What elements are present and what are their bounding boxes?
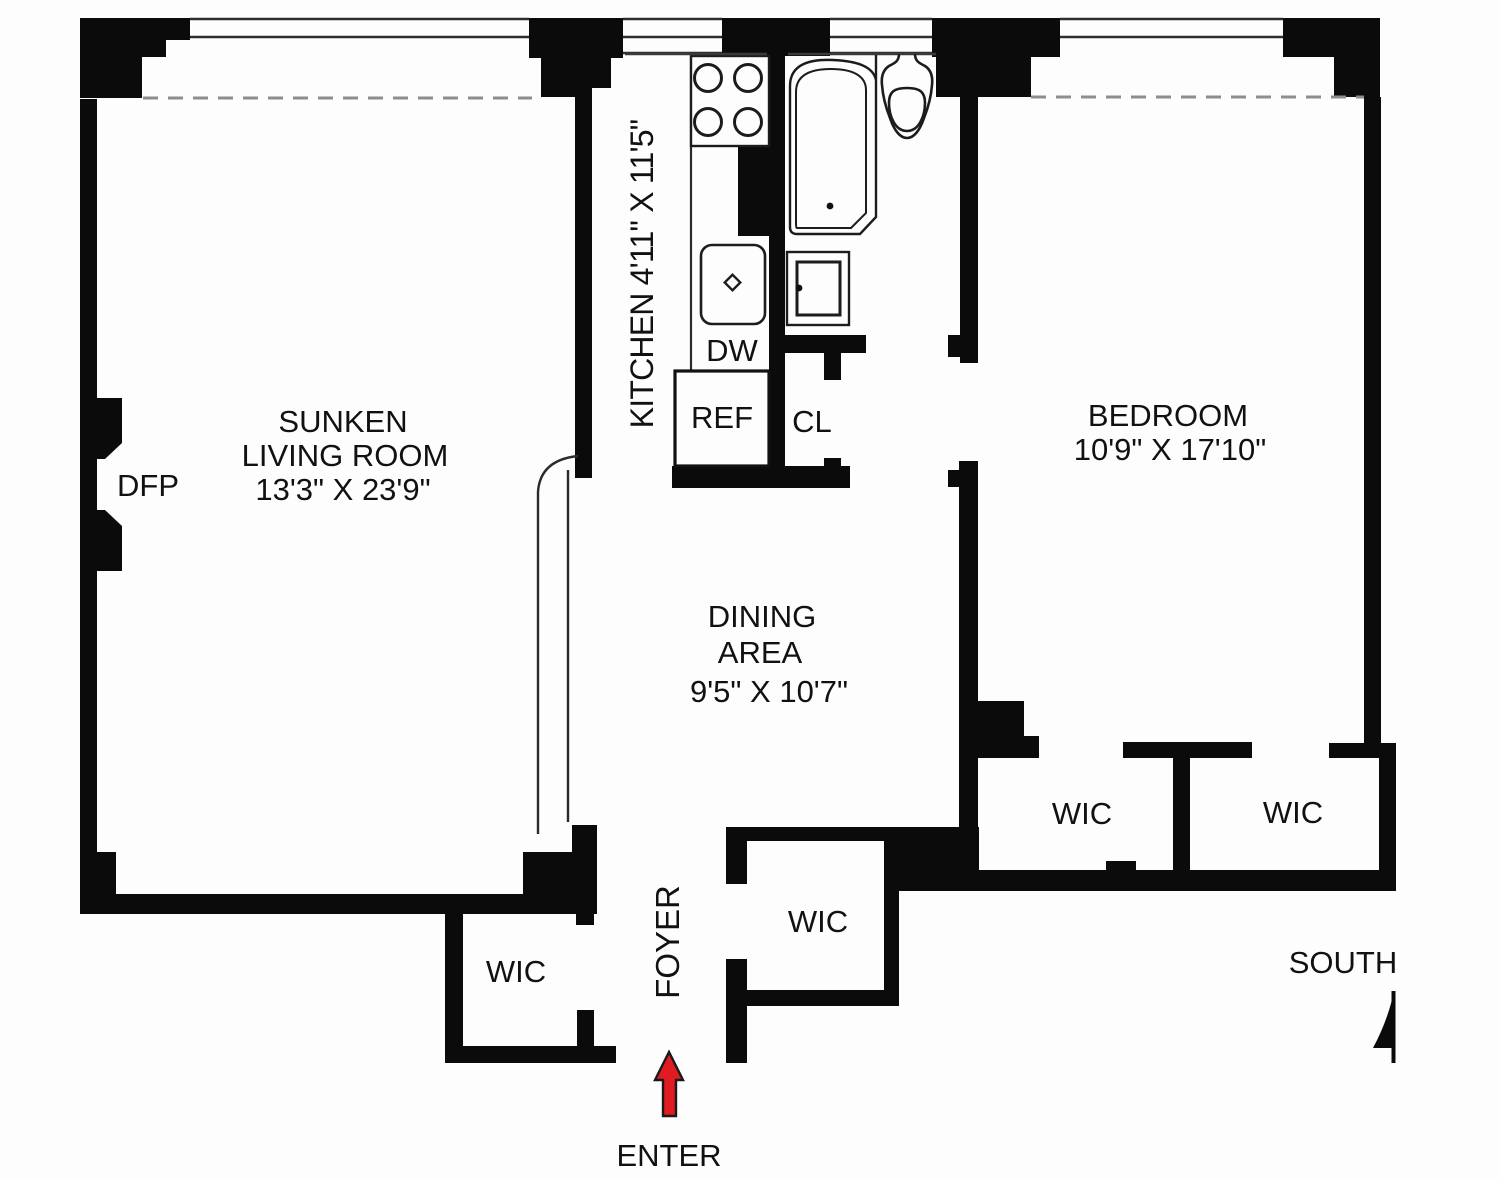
svg-text:SOUTH: SOUTH [1289,945,1398,980]
svg-text:CL: CL [792,404,832,439]
svg-text:13'3" X 23'9": 13'3" X 23'9" [255,472,430,507]
svg-text:REF: REF [691,400,753,435]
svg-text:DW: DW [706,333,758,368]
svg-text:LIVING ROOM: LIVING ROOM [242,438,449,473]
svg-text:ENTER: ENTER [616,1138,721,1173]
svg-text:10'9" X 17'10": 10'9" X 17'10" [1074,432,1266,467]
svg-text:DINING: DINING [708,599,817,634]
svg-text:WIC: WIC [486,954,546,989]
svg-text:9'5" X 10'7": 9'5" X 10'7" [690,674,848,709]
svg-text:WIC: WIC [788,904,848,939]
svg-text:KITCHEN 4'11" X 11'5": KITCHEN 4'11" X 11'5" [624,120,660,429]
svg-text:SUNKEN: SUNKEN [278,404,407,439]
svg-text:BEDROOM: BEDROOM [1088,398,1248,433]
svg-text:WIC: WIC [1263,795,1323,830]
svg-text:AREA: AREA [718,635,803,670]
svg-text:DFP: DFP [117,468,179,503]
svg-text:WIC: WIC [1052,796,1112,831]
svg-text:FOYER: FOYER [649,885,686,999]
